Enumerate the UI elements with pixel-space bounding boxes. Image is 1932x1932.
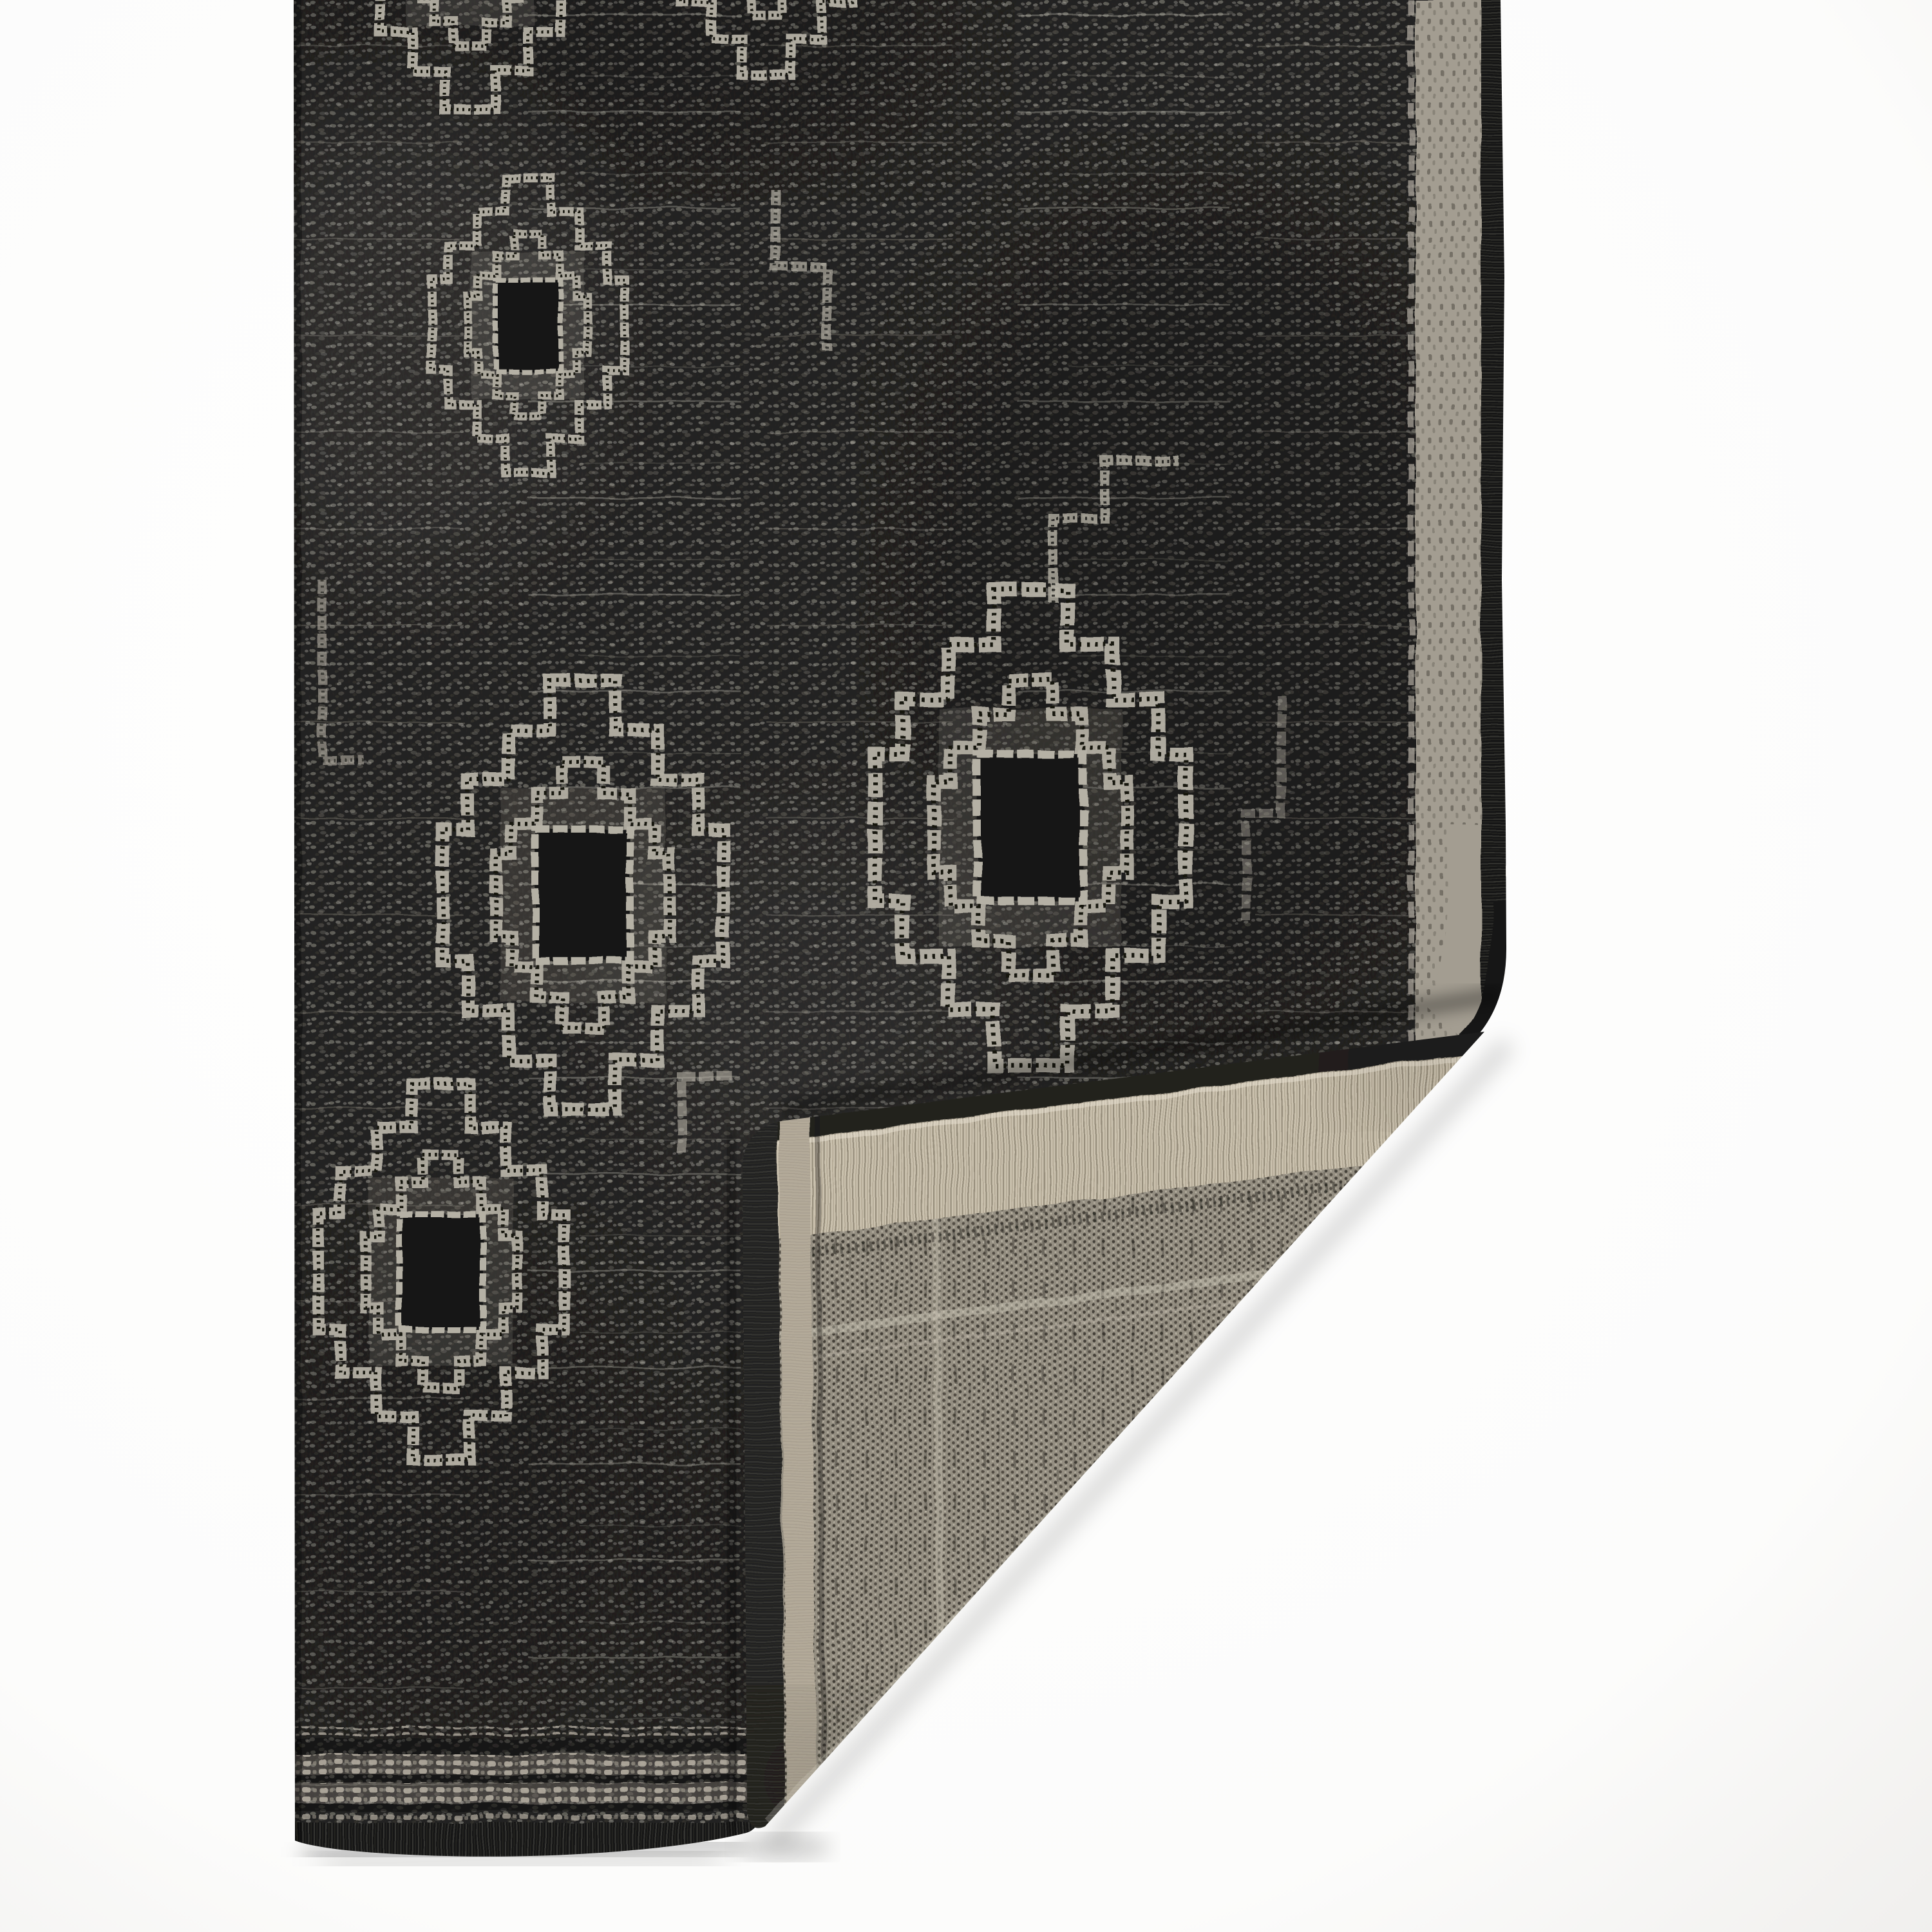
bottom-stripe-3 bbox=[292, 1811, 795, 1821]
product-photo: Product photograph: corner detail of a c… bbox=[0, 0, 1932, 1932]
bottom-stripe-1 bbox=[292, 1754, 795, 1775]
right-border bbox=[1411, 0, 1507, 1050]
bottom-stripe-2 bbox=[292, 1783, 795, 1803]
fold-tip-shadow bbox=[734, 1834, 831, 1860]
rug-photo-svg: Product photograph: corner detail of a c… bbox=[0, 0, 1932, 1932]
left-cut-edge bbox=[294, 0, 301, 1855]
bottom-stripe-thin bbox=[292, 1727, 795, 1736]
